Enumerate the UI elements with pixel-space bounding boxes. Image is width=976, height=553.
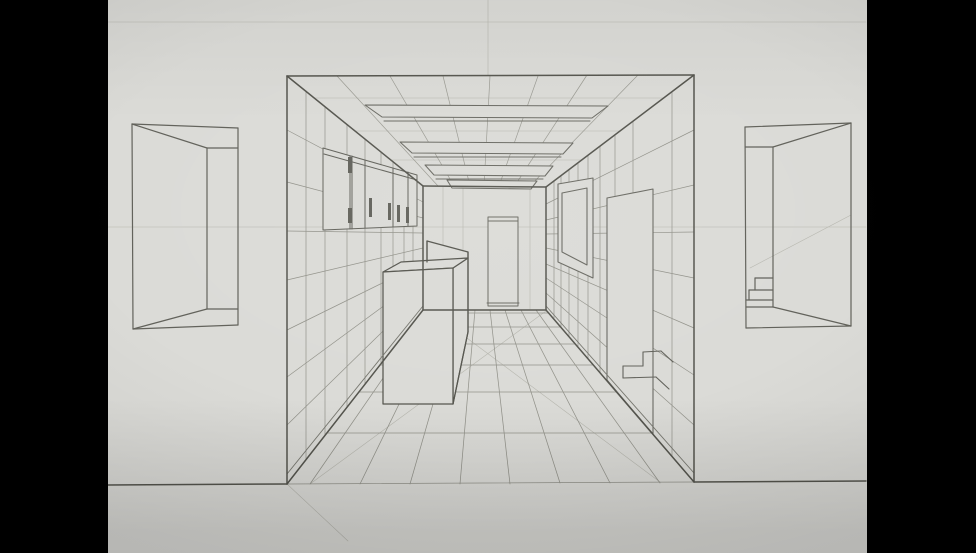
right-doorway-vignette — [745, 123, 851, 328]
letterbox-right — [867, 0, 976, 553]
right-wall-doorway — [607, 189, 653, 434]
kitchen-island — [383, 241, 468, 404]
back-doorway — [487, 217, 519, 306]
construction-lines — [108, 0, 866, 541]
letterbox-left — [0, 0, 108, 553]
left-doorway-vignette — [132, 124, 238, 329]
picture-frame — [558, 178, 593, 278]
photo-frame — [0, 0, 976, 553]
perspective-sketch — [0, 0, 976, 553]
